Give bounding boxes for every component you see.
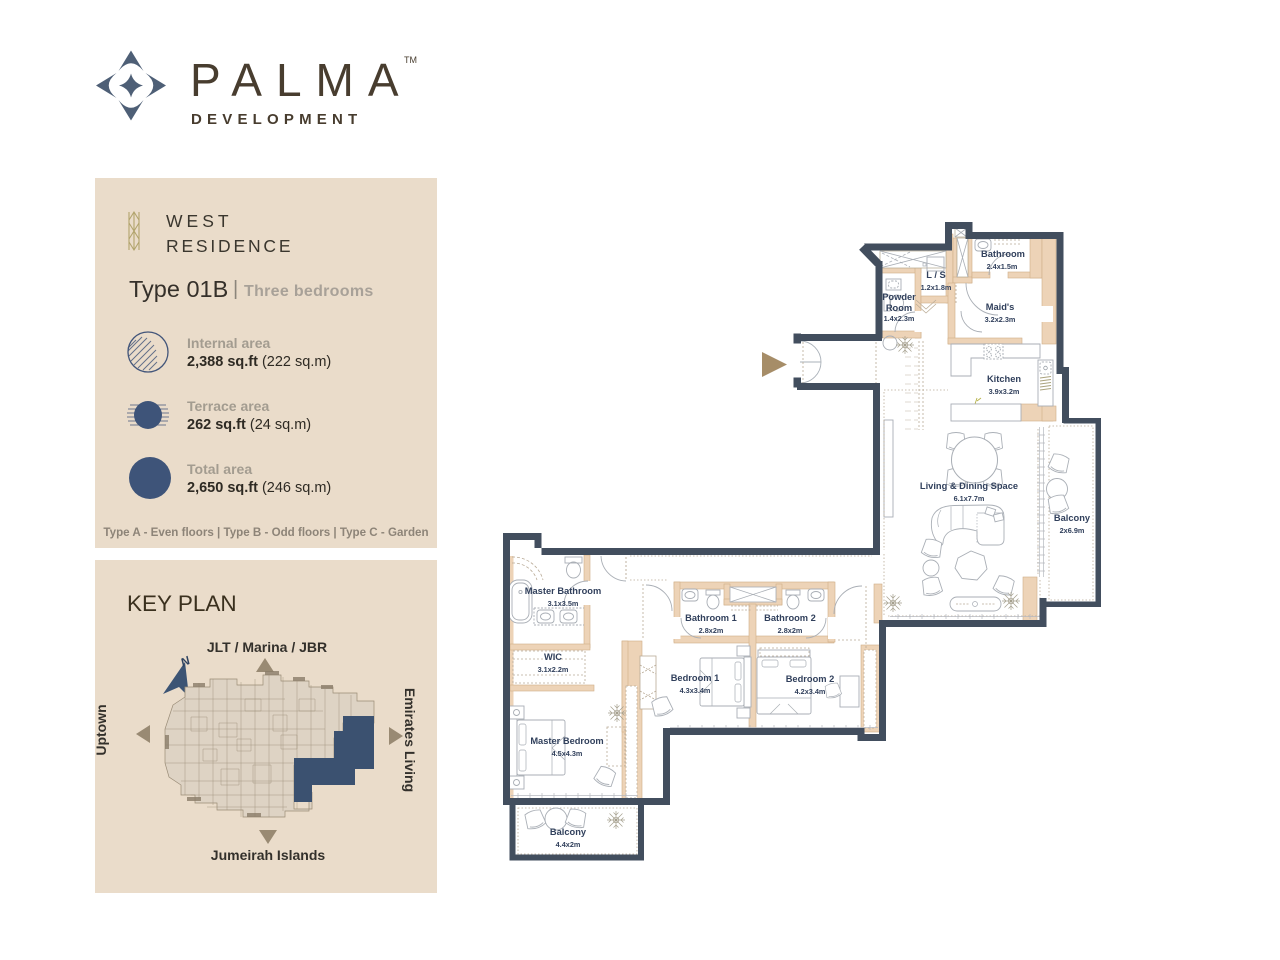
svg-text:Bedroom 1: Bedroom 1 xyxy=(671,673,720,683)
svg-text:L / S: L / S xyxy=(926,270,945,280)
svg-text:Bathroom: Bathroom xyxy=(981,249,1025,259)
svg-text:3.9x3.2m: 3.9x3.2m xyxy=(989,387,1020,396)
svg-text:Balcony: Balcony xyxy=(550,827,587,837)
svg-text:2.4x1.5m: 2.4x1.5m xyxy=(987,262,1018,271)
svg-text:4.5x4.3m: 4.5x4.3m xyxy=(552,749,583,758)
svg-text:4.2x3.4m: 4.2x3.4m xyxy=(795,687,826,696)
svg-text:4.3x3.4m: 4.3x3.4m xyxy=(680,686,711,695)
svg-text:1.4x2.3m: 1.4x2.3m xyxy=(884,314,915,323)
svg-text:3.1x2.2m: 3.1x2.2m xyxy=(538,665,569,674)
svg-text:Kitchen: Kitchen xyxy=(987,374,1021,384)
svg-text:1.2x1.8m: 1.2x1.8m xyxy=(921,283,952,292)
svg-text:Living & Dining Space: Living & Dining Space xyxy=(920,481,1018,491)
svg-text:Master Bathroom: Master Bathroom xyxy=(525,586,601,596)
svg-text:2.8x2m: 2.8x2m xyxy=(778,626,803,635)
svg-text:3.2x2.3m: 3.2x2.3m xyxy=(985,315,1016,324)
svg-text:Master Bedroom: Master Bedroom xyxy=(530,736,603,746)
svg-text:Bathroom 1: Bathroom 1 xyxy=(685,613,737,623)
svg-text:Powder: Powder xyxy=(882,292,916,302)
svg-text:3.1x3.5m: 3.1x3.5m xyxy=(548,599,579,608)
svg-text:Bathroom 2: Bathroom 2 xyxy=(764,613,816,623)
svg-text:Maid's: Maid's xyxy=(986,302,1015,312)
svg-text:WIC: WIC xyxy=(544,652,562,662)
svg-text:2.8x2m: 2.8x2m xyxy=(699,626,724,635)
svg-text:4.4x2m: 4.4x2m xyxy=(556,840,581,849)
svg-text:Room: Room xyxy=(886,303,912,313)
svg-text:2x6.9m: 2x6.9m xyxy=(1060,526,1085,535)
svg-text:Balcony: Balcony xyxy=(1054,513,1091,523)
svg-text:Bedroom 2: Bedroom 2 xyxy=(786,674,835,684)
svg-text:6.1x7.7m: 6.1x7.7m xyxy=(954,494,985,503)
